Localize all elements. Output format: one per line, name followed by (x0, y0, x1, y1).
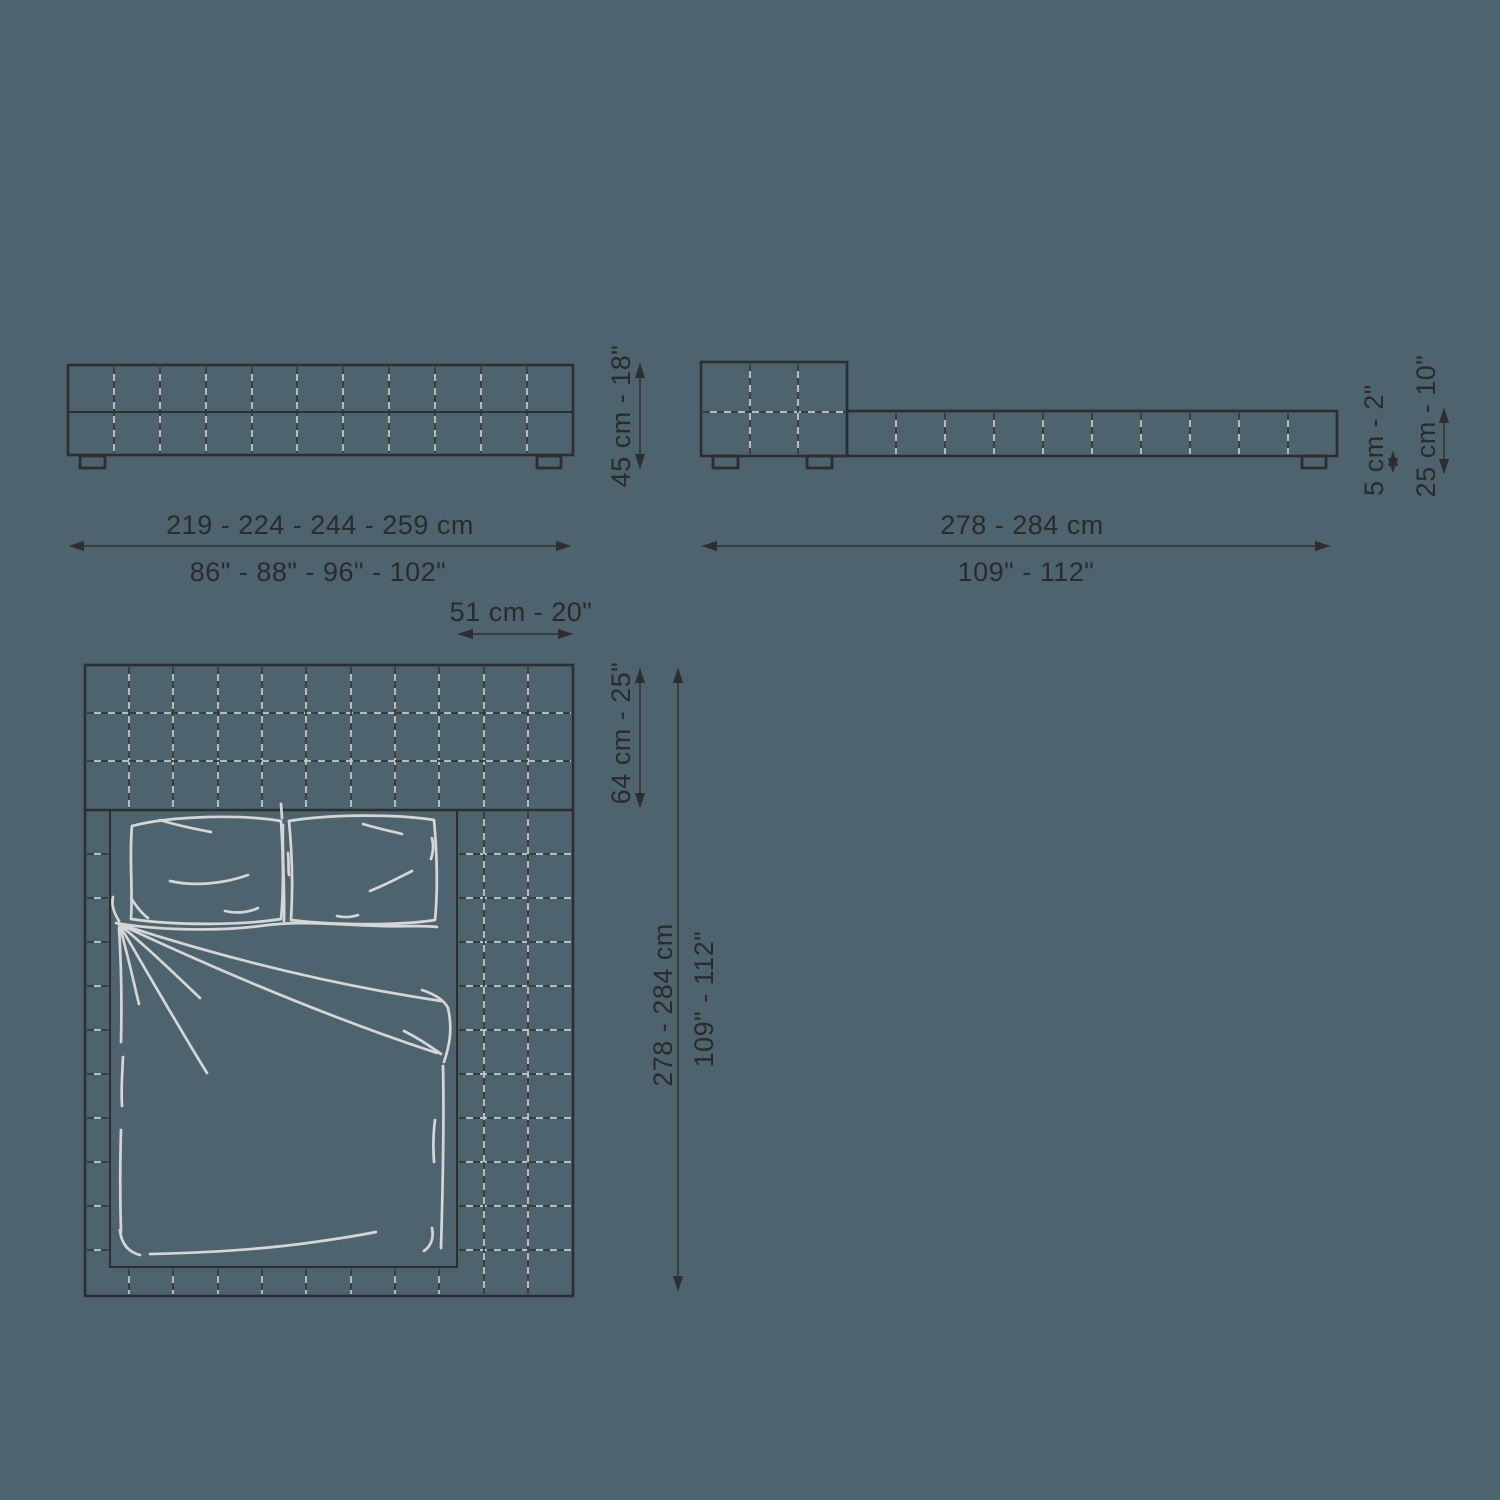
front-left-foot (80, 456, 105, 468)
bed-dimensions-diagram: 219 - 224 - 244 - 259 cm 86" - 88" - 96"… (0, 0, 1500, 1500)
side-length-in-label: 109" - 112" (958, 557, 1095, 587)
front-width-cm-label: 219 - 224 - 244 - 259 cm (166, 510, 474, 540)
side-foot-1 (713, 456, 738, 468)
technical-drawing-canvas: 219 - 224 - 244 - 259 cm 86" - 88" - 96"… (0, 0, 1500, 1500)
side-extension-label: 51 cm - 20" (450, 597, 593, 627)
frame-height-label: 25 cm - 10" (1411, 355, 1441, 498)
front-elevation-view (68, 365, 573, 468)
side-foot-2 (807, 456, 832, 468)
headboard-depth-label: 64 cm - 25" (606, 662, 636, 805)
front-width-in-label: 86" - 88" - 96" - 102" (190, 557, 446, 587)
plan-view (85, 665, 573, 1296)
side-elevation-view (701, 362, 1337, 468)
bedding-sketch (112, 804, 450, 1255)
side-foot-3 (1302, 456, 1326, 468)
front-right-foot (537, 456, 561, 468)
dimension-lines (70, 364, 1444, 1290)
feet-height-label: 5 cm - 2" (1359, 384, 1389, 496)
plan-length-cm-label: 278 - 284 cm (648, 923, 678, 1087)
front-height-label: 45 cm - 18" (606, 345, 636, 488)
side-length-cm-label: 278 - 284 cm (940, 510, 1104, 540)
plan-length-in-label: 109" - 112" (689, 931, 719, 1068)
